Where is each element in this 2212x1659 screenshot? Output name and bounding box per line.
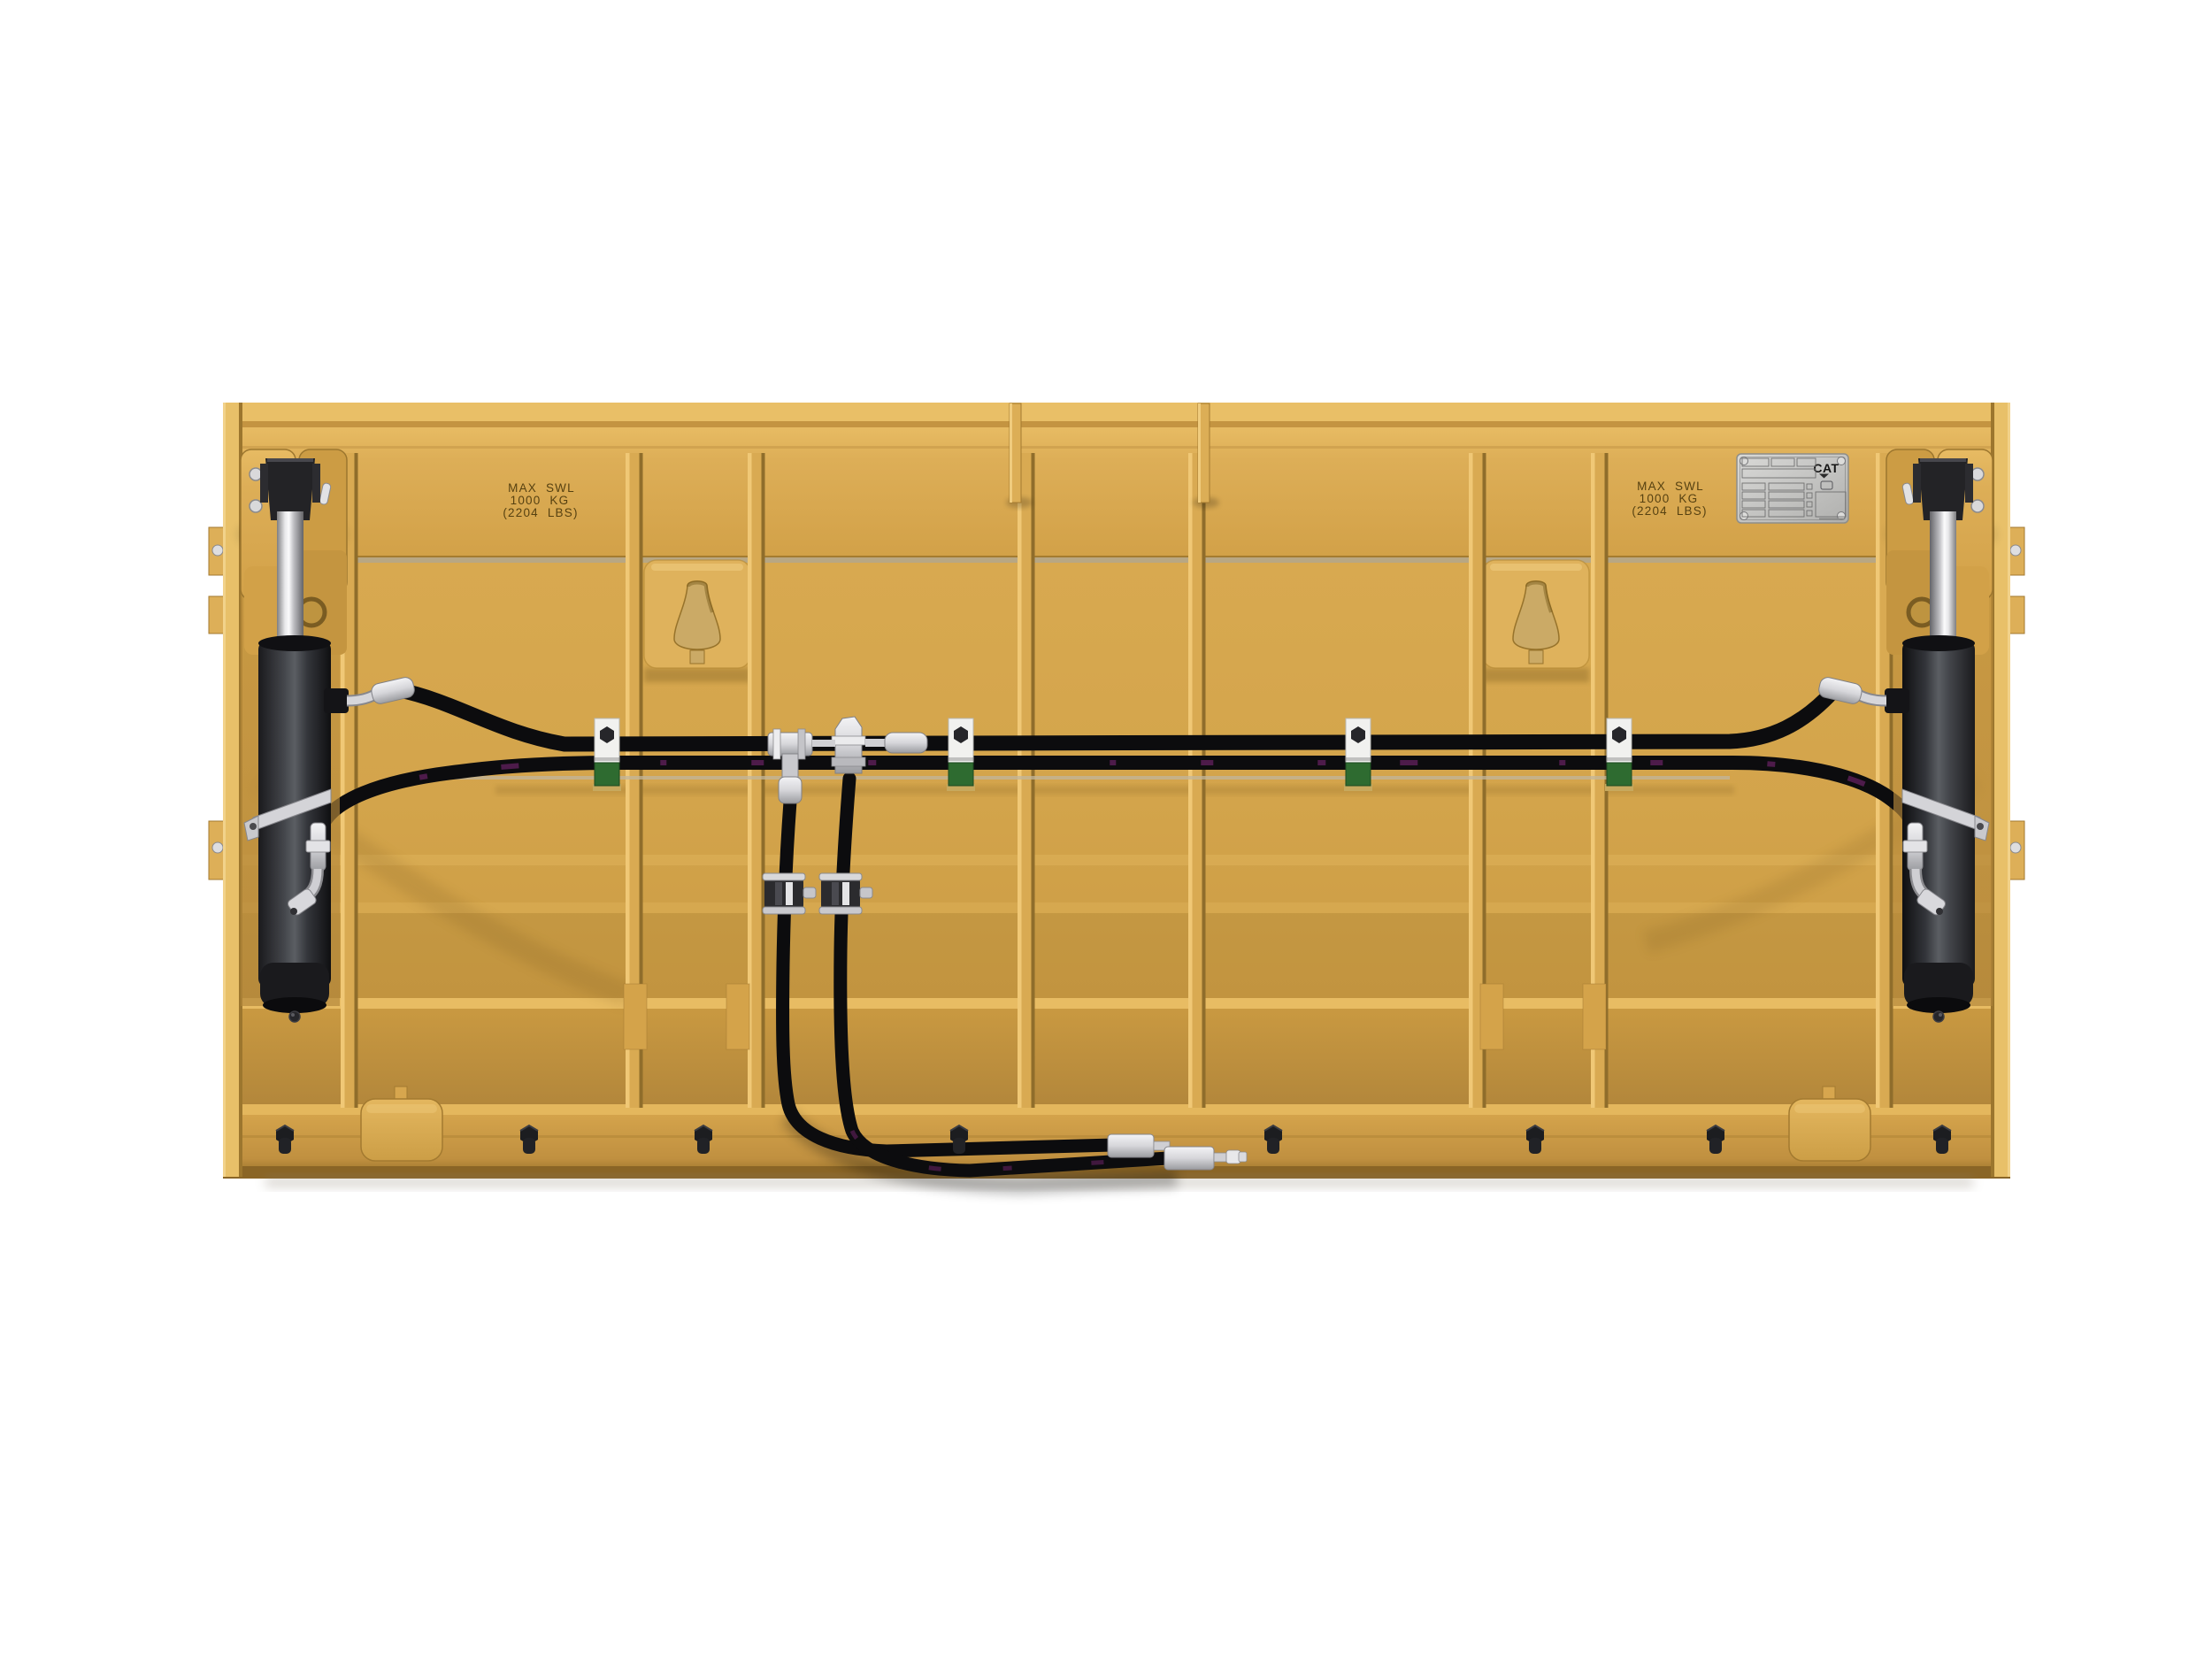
side-plate-left [209, 403, 242, 1177]
swl-right-line3: (2204 LBS) [1632, 504, 1707, 518]
rib-tall-left [1018, 453, 1035, 1108]
swl-left-line3: (2204 LBS) [503, 506, 578, 519]
rib-tab-left [1010, 403, 1021, 503]
swl-left-line1: MAX SWL [508, 481, 575, 495]
bulkhead-fitting-a [1108, 1134, 1154, 1157]
serial-plate: CAT [1737, 454, 1848, 523]
hose-clamp [1605, 718, 1633, 791]
rib-tab-right [1198, 403, 1210, 503]
keyhole-bracket-right [1483, 560, 1589, 682]
swl-right-line2: 1000 KG [1640, 492, 1699, 505]
cat-logo-text: CAT [1813, 461, 1839, 475]
keyhole-bracket-left [644, 560, 750, 682]
hose-clamp [947, 718, 975, 791]
side-plate-right [1991, 403, 2024, 1177]
attachment-rear-view: MAX SWL 1000 KG (2204 LBS) MAX SWL 1000 … [0, 0, 2212, 1659]
swl-marking-left: MAX SWL 1000 KG (2204 LBS) [503, 481, 578, 519]
swl-left-line2: 1000 KG [511, 494, 570, 507]
sill-tab [624, 984, 647, 1049]
rib [748, 453, 765, 1108]
bulkhead-fitting-b [1164, 1147, 1214, 1170]
ferrule-upper-line [885, 733, 927, 753]
sill-tab [726, 984, 749, 1049]
plate-footer-line [1819, 518, 1844, 520]
sill-tab [1480, 984, 1503, 1049]
swl-marking-right: MAX SWL 1000 KG (2204 LBS) [1632, 480, 1707, 518]
top-lip [223, 403, 2010, 423]
hose-clamp [593, 718, 621, 791]
rib-tall-right [1188, 453, 1206, 1108]
lower-sill [223, 1009, 2010, 1104]
drop-ferrule-a [779, 777, 802, 803]
hose-clamp [1344, 718, 1372, 791]
swl-right-line1: MAX SWL [1637, 480, 1704, 493]
sill-tab [1583, 984, 1606, 1049]
product-render-stage: MAX SWL 1000 KG (2204 LBS) MAX SWL 1000 … [0, 0, 2212, 1659]
